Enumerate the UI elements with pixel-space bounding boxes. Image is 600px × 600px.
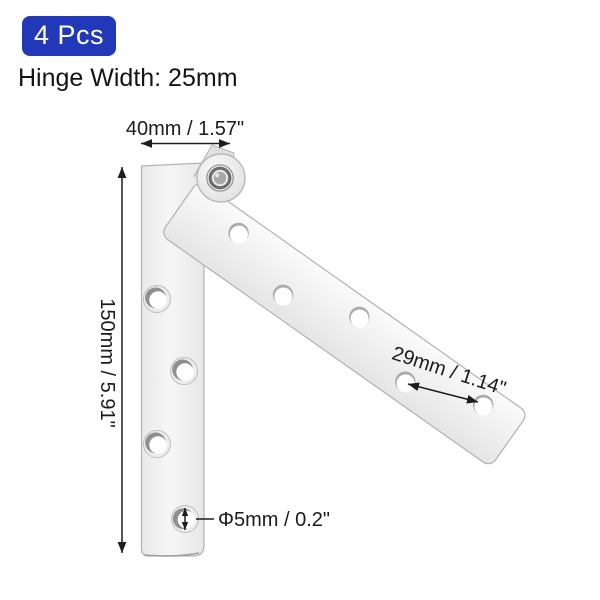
screw-hole	[144, 431, 171, 458]
pivot-rivet	[207, 165, 233, 191]
screw-hole	[171, 358, 198, 385]
screw-hole	[144, 286, 171, 313]
hinge-knuckle	[197, 154, 245, 202]
angled-leaf-plate	[160, 180, 528, 467]
hinge-diagram: 40mm / 1.57" 150mm / 5.91" 29mm / 1.14" …	[0, 0, 600, 600]
angled-leaf	[160, 180, 528, 467]
dim-width-label: 40mm / 1.57"	[126, 118, 244, 140]
dim-hole-diameter-label: Φ5mm / 0.2"	[218, 509, 330, 531]
product-image: 4 Pcs Hinge Width: 25mm	[0, 0, 600, 600]
dim-length-label: 150mm / 5.91"	[96, 298, 118, 427]
